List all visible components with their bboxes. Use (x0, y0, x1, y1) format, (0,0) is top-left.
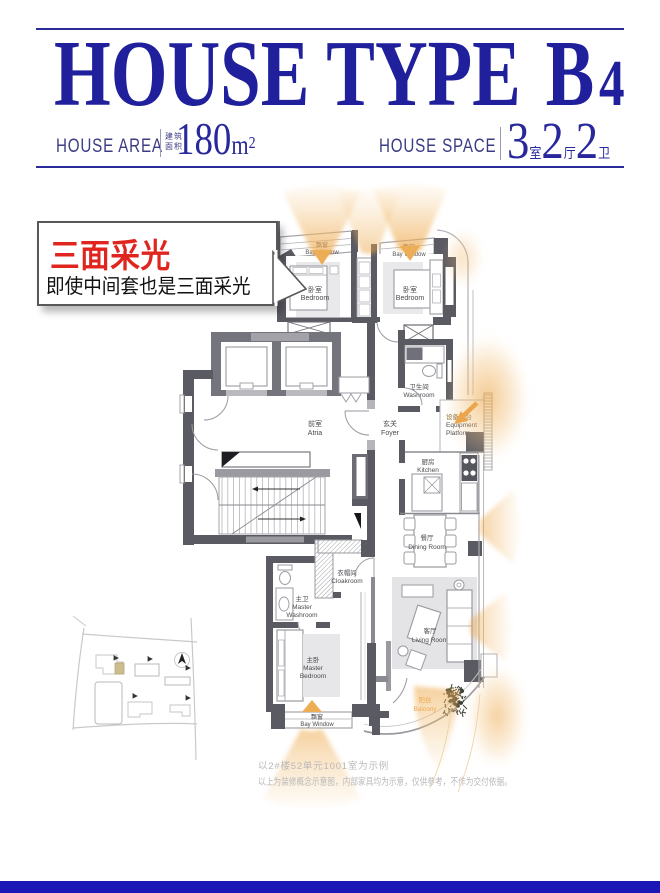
svg-text:Dining Room: Dining Room (408, 544, 446, 551)
svg-text:主卧: 主卧 (307, 655, 321, 664)
svg-text:Bedroom: Bedroom (300, 673, 326, 680)
svg-text:餐厅: 餐厅 (421, 533, 435, 542)
svg-text:玄关: 玄关 (383, 419, 397, 428)
svg-text:衣帽间: 衣帽间 (337, 568, 357, 577)
svg-text:Kitchen: Kitchen (417, 467, 439, 474)
svg-text:Washroom: Washroom (286, 612, 317, 619)
svg-text:Bay Window: Bay Window (300, 722, 334, 728)
svg-text:前室: 前室 (308, 419, 322, 428)
svg-text:Cloakroom: Cloakroom (331, 578, 362, 585)
svg-text:客厅: 客厅 (424, 626, 438, 635)
svg-text:飘窗: 飘窗 (311, 713, 323, 721)
svg-text:主卫: 主卫 (296, 594, 310, 603)
svg-text:Master: Master (303, 665, 324, 672)
svg-text:Atria: Atria (308, 430, 323, 437)
svg-text:Living Room: Living Room (412, 637, 448, 644)
svg-text:厨房: 厨房 (422, 457, 435, 466)
svg-text:Master: Master (292, 604, 313, 611)
svg-text:Foyer: Foyer (381, 430, 400, 437)
